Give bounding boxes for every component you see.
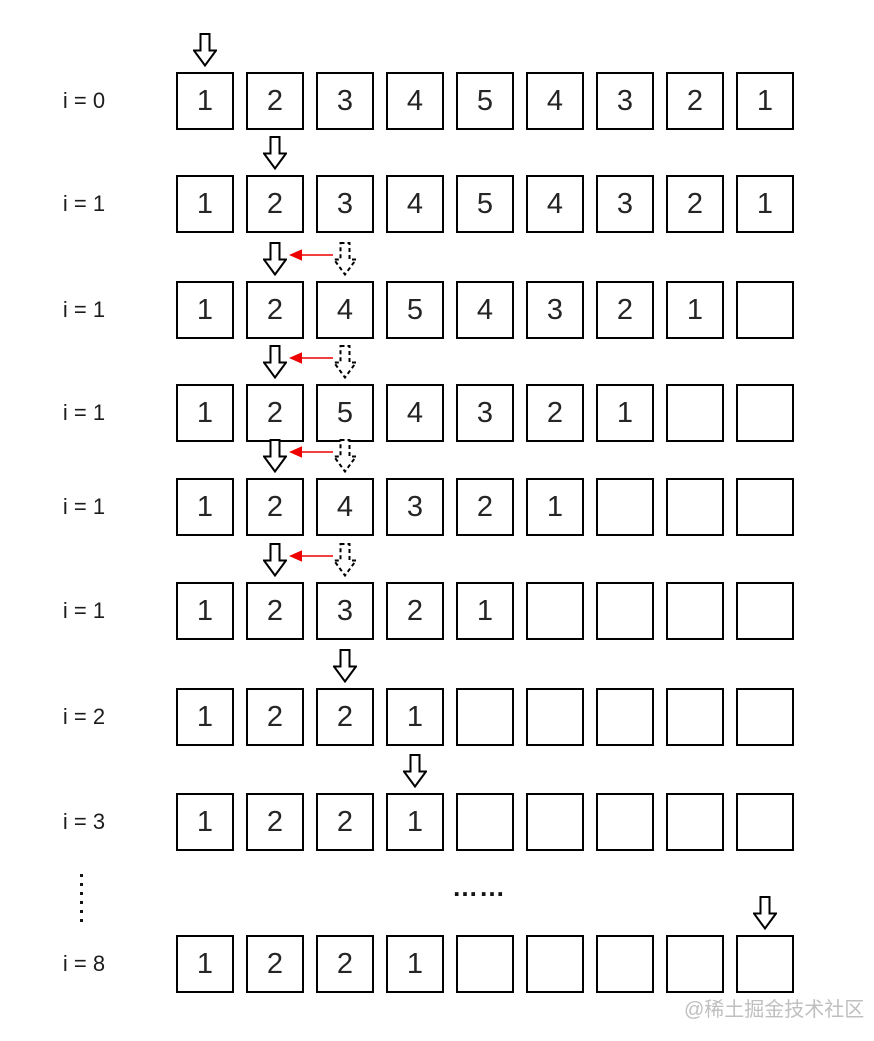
- array-cell: 5: [386, 281, 444, 339]
- down-arrow-solid-icon: [263, 242, 287, 276]
- array-cell: 1: [176, 175, 234, 233]
- array-cell: 1: [456, 582, 514, 640]
- array-cell: 2: [246, 281, 304, 339]
- row-index-label: i = 0: [46, 72, 122, 130]
- array-cell-empty: [736, 688, 794, 746]
- array-cell: 2: [386, 582, 444, 640]
- array-cell-empty: [526, 688, 584, 746]
- row-index-label: i = 1: [46, 478, 122, 536]
- array-cell: 1: [386, 935, 444, 993]
- array-cell: 1: [176, 384, 234, 442]
- array-row: i = 112321: [0, 582, 874, 640]
- down-arrow-dashed-icon: [333, 242, 357, 276]
- down-arrow-solid-icon: [263, 345, 287, 379]
- array-cell-empty: [666, 793, 724, 851]
- array-cell: 2: [246, 793, 304, 851]
- array-cell: 4: [526, 175, 584, 233]
- array-cell-empty: [736, 478, 794, 536]
- array-cell-empty: [736, 281, 794, 339]
- down-arrow-solid-icon: [263, 136, 287, 170]
- ellipsis-dot: [80, 874, 83, 877]
- array-row: i = 1123454321: [0, 175, 874, 233]
- down-arrow-solid-icon: [753, 896, 777, 930]
- array-cell: 3: [316, 582, 374, 640]
- array-cell: 1: [176, 582, 234, 640]
- ellipsis-dot: [80, 910, 83, 913]
- down-arrow-dashed-icon: [333, 543, 357, 577]
- array-cell: 3: [456, 384, 514, 442]
- array-cell-empty: [736, 384, 794, 442]
- array-cell: 1: [526, 478, 584, 536]
- down-arrow-dashed-icon: [333, 345, 357, 379]
- array-cell-empty: [526, 935, 584, 993]
- array-cell: 3: [596, 72, 654, 130]
- row-index-label: i = 1: [46, 281, 122, 339]
- row-index-label: i = 1: [46, 582, 122, 640]
- array-cell: 1: [176, 688, 234, 746]
- row-index-label: i = 1: [46, 384, 122, 442]
- array-cell: 4: [386, 384, 444, 442]
- array-row: i = 31221: [0, 793, 874, 851]
- array-cell-empty: [596, 688, 654, 746]
- down-arrow-solid-icon: [263, 543, 287, 577]
- red-left-arrow-icon: [289, 549, 333, 563]
- ellipsis-dot: [80, 892, 83, 895]
- array-cell-empty: [526, 582, 584, 640]
- array-cell: 2: [316, 688, 374, 746]
- array-cell-empty: [666, 935, 724, 993]
- array-cell: 5: [316, 384, 374, 442]
- array-row: i = 21221: [0, 688, 874, 746]
- vertical-ellipsis: [80, 874, 83, 922]
- array-cell: 3: [386, 478, 444, 536]
- array-row: i = 1124321: [0, 478, 874, 536]
- array-cell: 3: [596, 175, 654, 233]
- array-cell-empty: [736, 582, 794, 640]
- ellipsis-dot: [80, 919, 83, 922]
- array-cell: 1: [386, 688, 444, 746]
- red-left-arrow-icon: [289, 248, 333, 262]
- array-cell: 1: [176, 793, 234, 851]
- array-cell-empty: [526, 793, 584, 851]
- array-cell: 4: [386, 175, 444, 233]
- array-cell: 2: [526, 384, 584, 442]
- array-cell: 2: [246, 688, 304, 746]
- array-cell: 4: [316, 281, 374, 339]
- array-cell-empty: [666, 582, 724, 640]
- watermark: @稀土掘金技术社区: [684, 993, 864, 1022]
- array-cell: 3: [526, 281, 584, 339]
- array-cell: 5: [456, 72, 514, 130]
- down-arrow-dashed-icon: [333, 439, 357, 473]
- array-cell: 2: [246, 384, 304, 442]
- array-cell: 1: [596, 384, 654, 442]
- array-cell: 1: [176, 478, 234, 536]
- array-cell: 4: [316, 478, 374, 536]
- array-cell-empty: [456, 935, 514, 993]
- row-index-label: i = 1: [46, 175, 122, 233]
- array-cell: 1: [176, 935, 234, 993]
- array-cell: 3: [316, 175, 374, 233]
- down-arrow-solid-icon: [263, 439, 287, 473]
- array-cell: 2: [246, 582, 304, 640]
- array-cell: 1: [386, 793, 444, 851]
- array-cell: 4: [526, 72, 584, 130]
- array-row: i = 11254321: [0, 384, 874, 442]
- array-cell-empty: [596, 478, 654, 536]
- array-cell: 2: [246, 478, 304, 536]
- array-cell-empty: [596, 793, 654, 851]
- row-index-label: i = 8: [46, 935, 122, 993]
- row-index-label: i = 3: [46, 793, 122, 851]
- down-arrow-solid-icon: [333, 649, 357, 683]
- array-cell: 1: [736, 72, 794, 130]
- array-cell: 2: [246, 935, 304, 993]
- array-cell-empty: [666, 688, 724, 746]
- array-row: i = 0123454321: [0, 72, 874, 130]
- array-cell: 2: [596, 281, 654, 339]
- array-row: i = 112454321: [0, 281, 874, 339]
- array-cell-empty: [736, 793, 794, 851]
- array-cell-empty: [456, 688, 514, 746]
- array-cell: 2: [666, 175, 724, 233]
- array-cell: 2: [456, 478, 514, 536]
- array-cell: 4: [456, 281, 514, 339]
- array-row: i = 81221: [0, 935, 874, 993]
- ellipsis-dot: [80, 883, 83, 886]
- array-cell-empty: [736, 935, 794, 993]
- array-cell: 3: [316, 72, 374, 130]
- diagram-canvas: …… @稀土掘金技术社区 i = 0123454321i = 112345432…: [0, 0, 874, 1041]
- array-cell-empty: [596, 935, 654, 993]
- array-cell-empty: [456, 793, 514, 851]
- red-left-arrow-icon: [289, 445, 333, 459]
- red-left-arrow-icon: [289, 351, 333, 365]
- down-arrow-solid-icon: [403, 754, 427, 788]
- array-cell: 2: [316, 793, 374, 851]
- array-cell: 2: [246, 72, 304, 130]
- array-cell-empty: [596, 582, 654, 640]
- array-cell: 2: [316, 935, 374, 993]
- array-cell: 1: [176, 72, 234, 130]
- array-cell: 1: [176, 281, 234, 339]
- array-cell-empty: [666, 384, 724, 442]
- array-cell: 1: [736, 175, 794, 233]
- array-cell: 2: [246, 175, 304, 233]
- array-cell: 5: [456, 175, 514, 233]
- horizontal-ellipsis: ……: [452, 872, 506, 903]
- ellipsis-dot: [80, 901, 83, 904]
- array-cell: 1: [666, 281, 724, 339]
- array-cell: 2: [666, 72, 724, 130]
- row-index-label: i = 2: [46, 688, 122, 746]
- down-arrow-solid-icon: [193, 33, 217, 67]
- array-cell-empty: [666, 478, 724, 536]
- array-cell: 4: [386, 72, 444, 130]
